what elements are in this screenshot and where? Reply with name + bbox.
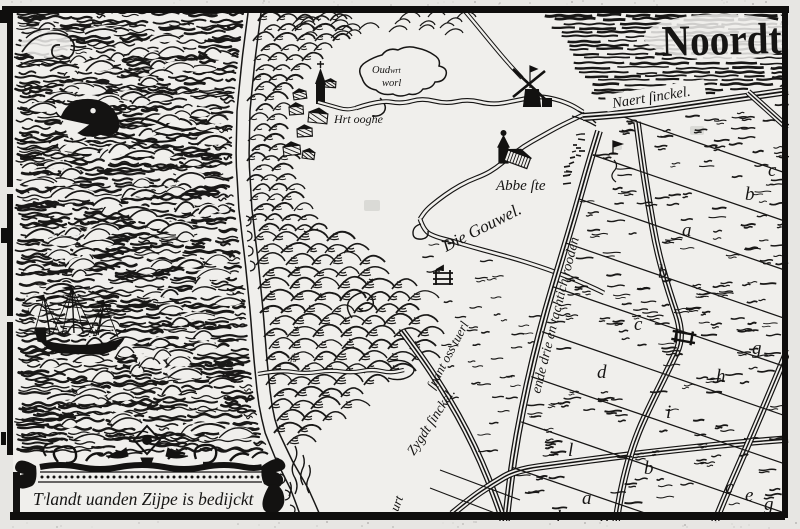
svg-text:a: a — [582, 488, 592, 509]
svg-text:b: b — [644, 458, 654, 479]
svg-text:i: i — [666, 402, 671, 423]
svg-text:l: l — [568, 440, 573, 461]
svg-text:Abbe ſte: Abbe ſte — [495, 178, 546, 194]
svg-text:ſs: ſs — [290, 354, 297, 365]
svg-text:b: b — [745, 184, 755, 205]
svg-text:a: a — [682, 220, 692, 241]
svg-text:e: e — [745, 485, 753, 506]
svg-text:worl: worl — [382, 78, 401, 89]
svg-text:Oudwrt: Oudwrt — [372, 65, 402, 76]
svg-text:Noordt: Noordt — [661, 14, 783, 66]
svg-text:Hrt ooghe: Hrt ooghe — [333, 112, 384, 126]
svg-text:h: h — [716, 366, 726, 387]
svg-text:c: c — [634, 314, 643, 335]
svg-text:c: c — [725, 477, 734, 498]
svg-text:g: g — [752, 338, 762, 359]
svg-text:T'landt uanden Zijpe is bedijc: T'landt uanden Zijpe is bedijckt — [33, 489, 255, 509]
svg-text:d: d — [597, 362, 607, 383]
svg-text:c: c — [768, 160, 777, 181]
svg-text:b: b — [658, 262, 668, 283]
svg-text:g: g — [764, 494, 774, 515]
